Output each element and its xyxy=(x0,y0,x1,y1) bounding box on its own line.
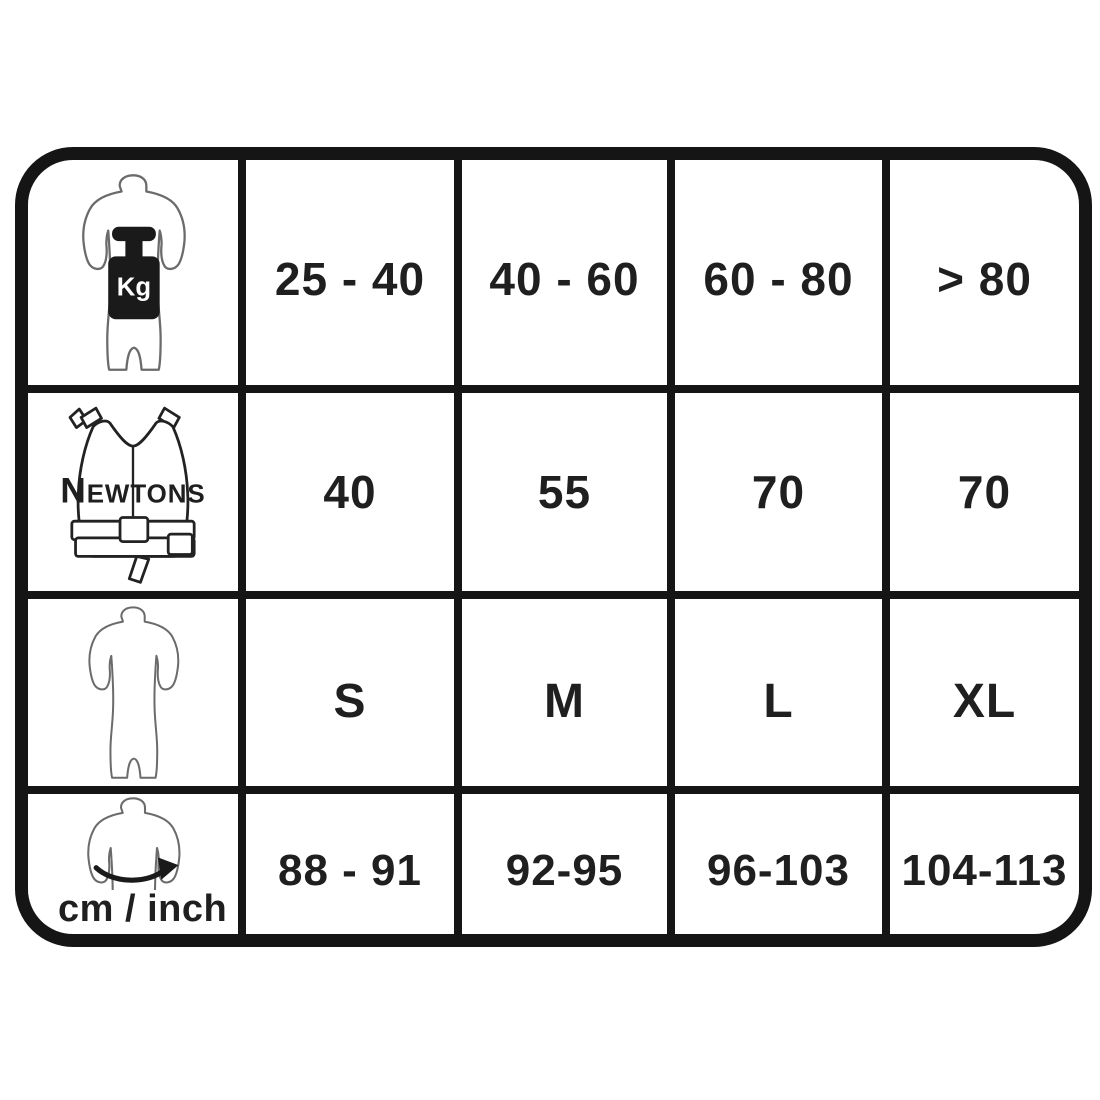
table-cell: cm / inch xyxy=(28,794,238,934)
table-cell: 70 xyxy=(890,393,1079,591)
chest-girth-arrow-icon xyxy=(59,794,207,890)
table-cell: 25 - 40 xyxy=(246,160,454,385)
buoyancy-vest-icon: NEWTONS xyxy=(40,397,226,587)
table-cell: XL xyxy=(890,599,1079,786)
table-cell: > 80 xyxy=(890,160,1079,385)
chest-range-value: 96-103 xyxy=(707,832,850,896)
table-cell: M xyxy=(462,599,667,786)
size-chart-grid: Kg 25 - 40 40 - 60 60 - 80 > 80 NEWTONS xyxy=(28,160,1079,934)
weight-range-value: 60 - 80 xyxy=(703,239,853,306)
table-cell: 88 - 91 xyxy=(246,794,454,934)
table-cell: 104-113 xyxy=(890,794,1079,934)
newtons-value: 55 xyxy=(538,465,591,519)
size-value: L xyxy=(763,656,793,729)
newtons-value: 40 xyxy=(323,465,376,519)
weight-range-value: > 80 xyxy=(937,239,1032,306)
newtons-value: 70 xyxy=(752,465,805,519)
body-weight-kg-icon: Kg xyxy=(52,170,214,376)
kg-label: Kg xyxy=(117,273,151,301)
table-cell: 70 xyxy=(675,393,882,591)
table-cell: 60 - 80 xyxy=(675,160,882,385)
size-value: M xyxy=(544,656,585,729)
chest-range-value: 104-113 xyxy=(901,832,1067,896)
table-cell xyxy=(28,599,238,786)
table-cell: 55 xyxy=(462,393,667,591)
table-cell: Kg xyxy=(28,160,238,385)
shorty-suit-icon xyxy=(62,603,204,783)
table-cell: 40 - 60 xyxy=(462,160,667,385)
weight-range-value: 40 - 60 xyxy=(489,239,639,306)
table-cell: L xyxy=(675,599,882,786)
table-cell: NEWTONS xyxy=(28,393,238,591)
weight-range-value: 25 - 40 xyxy=(275,239,425,306)
table-cell: 96-103 xyxy=(675,794,882,934)
chest-range-value: 88 - 91 xyxy=(278,832,422,896)
table-cell: 92-95 xyxy=(462,794,667,934)
chest-range-value: 92-95 xyxy=(506,832,624,896)
cm-inch-label: cm / inch xyxy=(28,890,238,934)
size-value: XL xyxy=(953,656,1016,729)
size-value: S xyxy=(333,656,366,729)
newtons-value: 70 xyxy=(958,465,1011,519)
size-chart-table: Kg 25 - 40 40 - 60 60 - 80 > 80 NEWTONS xyxy=(15,147,1092,947)
table-cell: 40 xyxy=(246,393,454,591)
table-cell: S xyxy=(246,599,454,786)
